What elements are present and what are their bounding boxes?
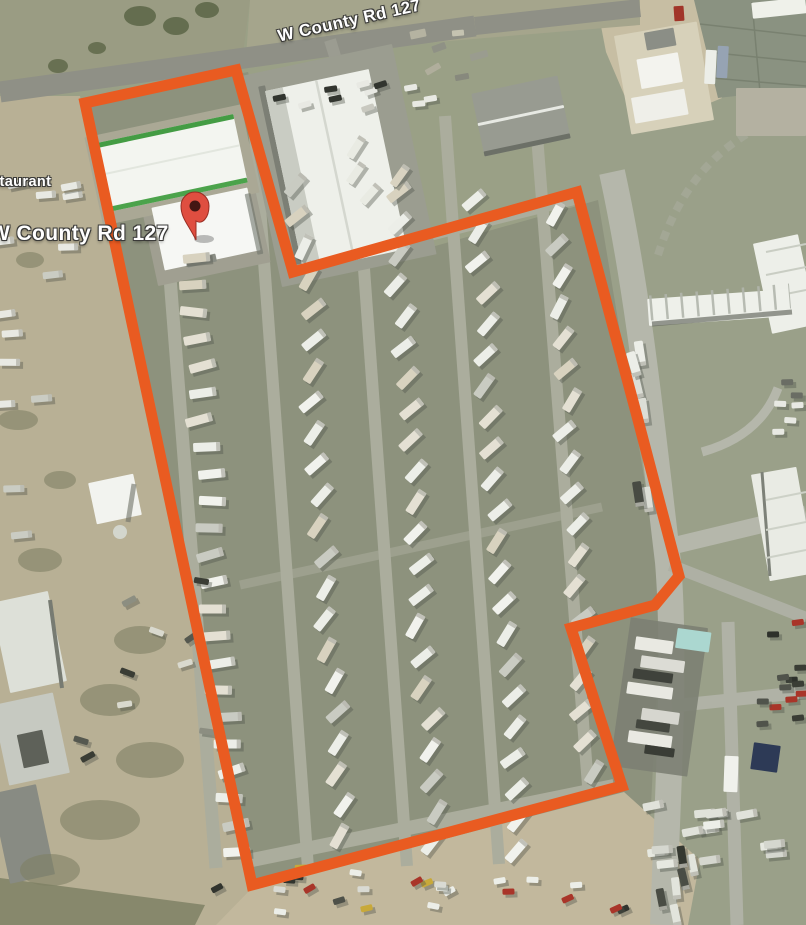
trailers-left-top-cab <box>58 270 63 277</box>
cars-se-rows <box>767 631 779 637</box>
cars-se-rows <box>785 696 797 703</box>
cars-right-edge <box>791 402 803 409</box>
box-truck <box>723 756 738 792</box>
rv-trailer-cab <box>222 497 226 506</box>
trailers-se-row2-cab <box>673 859 678 867</box>
cars-se-rows <box>757 698 769 704</box>
cars-bottom-strip <box>434 881 446 888</box>
tree <box>88 42 106 54</box>
trailers-left-mid-cab <box>48 394 53 401</box>
trailers-left-mid-cab <box>28 530 33 537</box>
rv-trailer-cab <box>202 280 207 289</box>
cars-bottom-strip <box>502 888 514 894</box>
trailers-se-row2-cab <box>780 839 785 847</box>
scrub <box>44 471 76 489</box>
cars-se-rows <box>796 690 806 697</box>
cars-bottom-strip <box>357 886 369 892</box>
cars-bottom-strip <box>526 877 538 884</box>
storage-tank <box>113 525 127 539</box>
tree <box>48 59 68 73</box>
tree <box>163 17 189 35</box>
rv-trailer-cab <box>216 442 220 451</box>
rv-trailer <box>199 604 226 613</box>
scrub <box>20 854 80 886</box>
pin-shadow <box>194 235 214 243</box>
red-truck-cab <box>673 6 684 22</box>
cars-se-rows <box>794 665 806 671</box>
rv-trailer-cab <box>228 686 232 695</box>
semi-trailer <box>704 50 717 85</box>
location-pin-dot <box>190 201 201 212</box>
cars-right-edge <box>774 401 786 408</box>
road-label-left: W County Rd 127 <box>0 222 169 246</box>
trailers-left-top-cab <box>52 191 57 198</box>
satellite-imagery <box>0 0 806 925</box>
trailers-left-mid-cab <box>20 485 24 492</box>
scrap <box>431 42 447 53</box>
cars-bottom-strip <box>570 882 582 889</box>
cars-se-rows <box>792 681 804 688</box>
rv-trailer-cab <box>237 740 241 749</box>
scrub <box>80 684 140 716</box>
loading-apron <box>736 88 806 136</box>
satellite-map-view[interactable]: W County Rd 127 W County Rd 127 staurant <box>0 0 806 925</box>
cars-se-rows <box>756 720 768 727</box>
rv-trailer-cab <box>238 712 242 721</box>
scrub <box>116 742 184 778</box>
semi-trailer-blue <box>716 46 729 79</box>
trailers-left-mid-cab <box>18 329 22 336</box>
tree <box>195 2 219 18</box>
cars-right-edge <box>784 417 796 424</box>
scrub <box>16 252 44 268</box>
scrub <box>60 800 140 840</box>
cars-right-edge <box>772 429 784 435</box>
scrub <box>18 548 62 572</box>
rv-trailer-cab <box>218 524 222 533</box>
scrap <box>455 73 470 81</box>
trailers-left-mid-cab <box>11 400 15 407</box>
dumpster-blue <box>750 742 780 772</box>
scrap <box>425 62 442 75</box>
tree <box>124 6 156 26</box>
restaurant-label: staurant <box>0 174 51 190</box>
trailers-se-row2-cab <box>668 845 673 853</box>
trailers-left-mid-cab <box>16 359 20 366</box>
scrap <box>452 29 464 36</box>
rv-trailer-cab <box>222 605 226 614</box>
rv-trailer-cab <box>226 630 231 639</box>
cars-right-edge <box>791 392 803 398</box>
scrap <box>469 50 488 61</box>
cars-top-row <box>412 100 425 107</box>
cars-right-edge <box>781 379 793 385</box>
